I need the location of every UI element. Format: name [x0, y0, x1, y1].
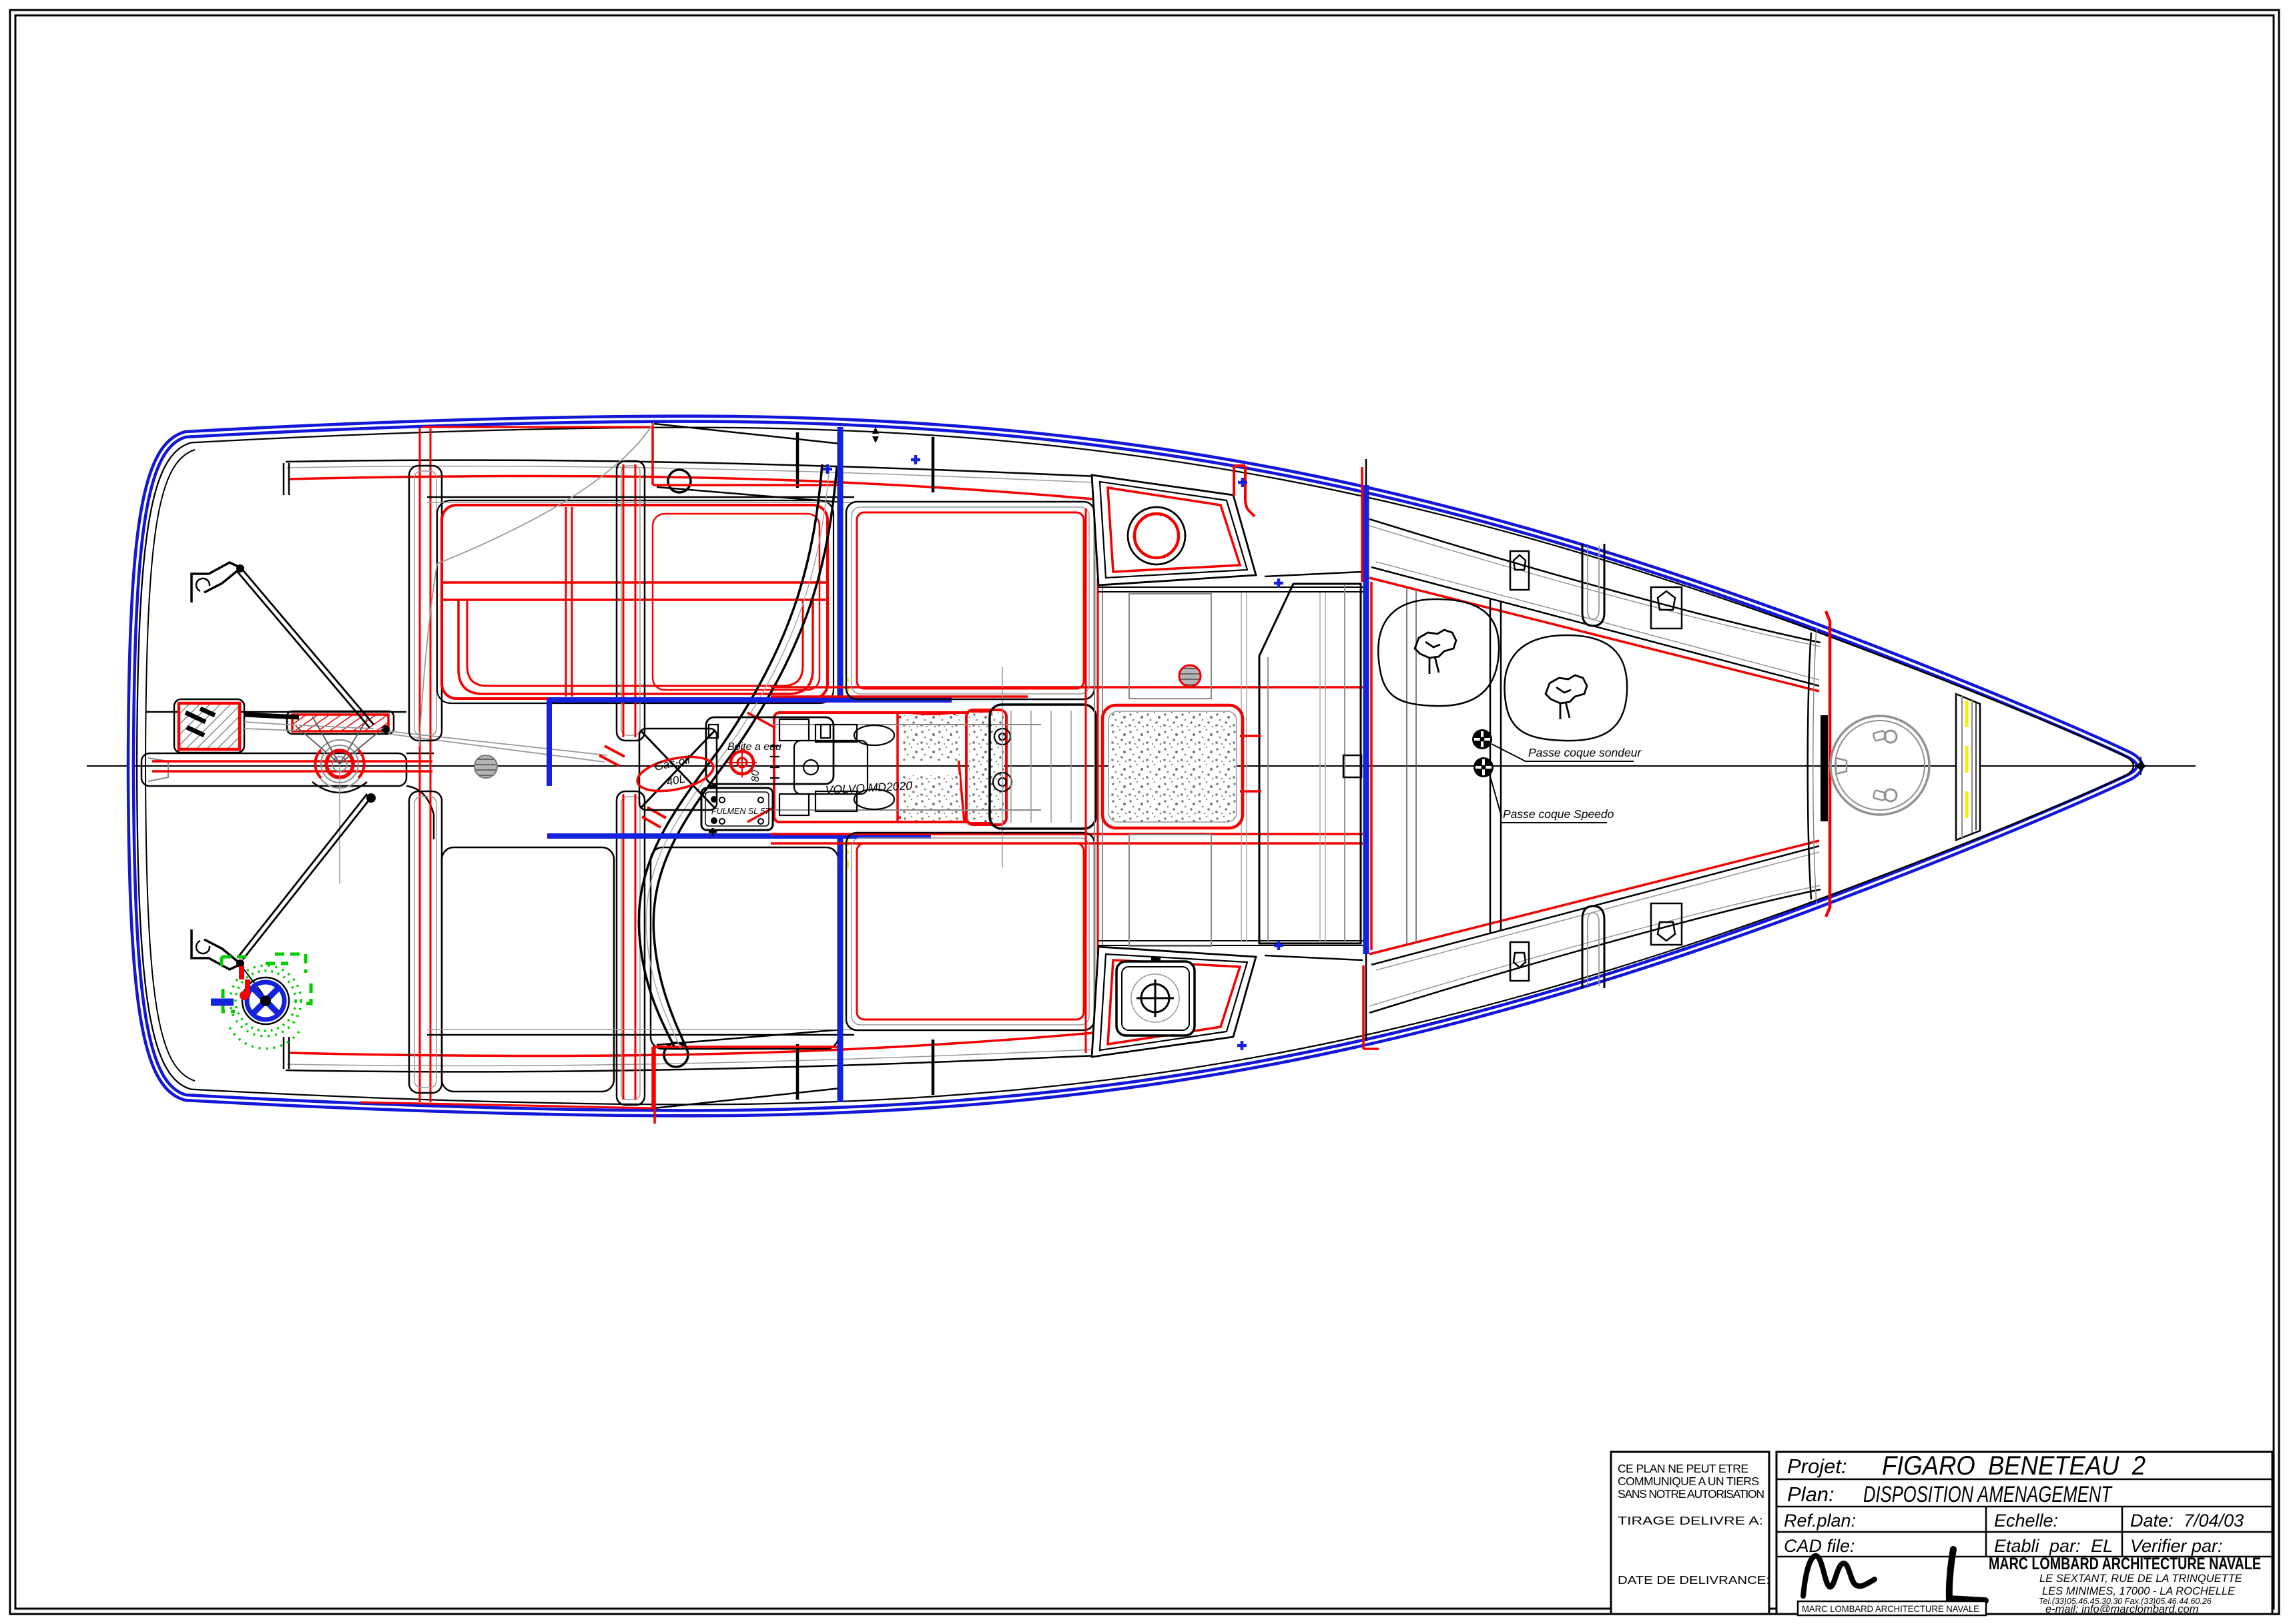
- svg-text:MARC LOMBARD ARCHITECTURE NAVA: MARC LOMBARD ARCHITECTURE NAVALE: [1989, 1555, 2261, 1573]
- svg-text:Plan:: Plan:: [1787, 1483, 1835, 1506]
- svg-text:80: 80: [750, 770, 761, 782]
- svg-text:CAD file:: CAD file:: [1784, 1536, 1855, 1556]
- svg-text:Passe coque sondeur: Passe coque sondeur: [1528, 746, 1642, 759]
- svg-text:Ref.plan:: Ref.plan:: [1784, 1511, 1856, 1531]
- svg-text:COMMUNIQUE A UN TIERS: COMMUNIQUE A UN TIERS: [1618, 1475, 1759, 1488]
- svg-text:DISPOSITION AMENAGEMENT: DISPOSITION AMENAGEMENT: [1863, 1482, 2113, 1507]
- svg-text:DATE DE DELIVRANCE:: DATE DE DELIVRANCE:: [1618, 1573, 1770, 1587]
- svg-text:Boite a eau: Boite a eau: [727, 741, 781, 753]
- svg-text:MARC LOMBARD ARCHITECTURE NAVA: MARC LOMBARD ARCHITECTURE NAVALE: [1802, 1603, 1979, 1614]
- svg-text:Echelle:: Echelle:: [1994, 1511, 2058, 1531]
- svg-text:Date: 7/04/03: Date: 7/04/03: [2130, 1511, 2244, 1531]
- svg-text:e-mail: info@marclombard.com: e-mail: info@marclombard.com: [2045, 1603, 2198, 1615]
- svg-text:Projet:: Projet:: [1787, 1455, 1847, 1478]
- svg-text:Passe coque Speedo: Passe coque Speedo: [1503, 807, 1614, 821]
- svg-text:SANS NOTRE AUTORISATION: SANS NOTRE AUTORISATION: [1618, 1487, 1764, 1501]
- svg-text:LE SEXTANT, RUE DE LA TRINQUE: LE SEXTANT, RUE DE LA TRINQUETTE: [2039, 1573, 2243, 1585]
- svg-text:CE PLAN NE PEUT ETRE: CE PLAN NE PEUT ETRE: [1618, 1462, 1748, 1475]
- svg-text:Verifier par:: Verifier par:: [2130, 1536, 2223, 1556]
- svg-text:FIGARO BENETEAU 2: FIGARO BENETEAU 2: [1882, 1451, 2146, 1481]
- svg-text:FULMEN SL 57: FULMEN SL 57: [711, 807, 770, 816]
- svg-text:TIRAGE DELIVRE A:: TIRAGE DELIVRE A:: [1618, 1514, 1763, 1527]
- svg-text:LES MINIMES, 17000 - LA ROCHEL: LES MINIMES, 17000 - LA ROCHELLE: [2042, 1585, 2236, 1597]
- svg-text:Etabli par: EL: Etabli par: EL: [1994, 1536, 2113, 1556]
